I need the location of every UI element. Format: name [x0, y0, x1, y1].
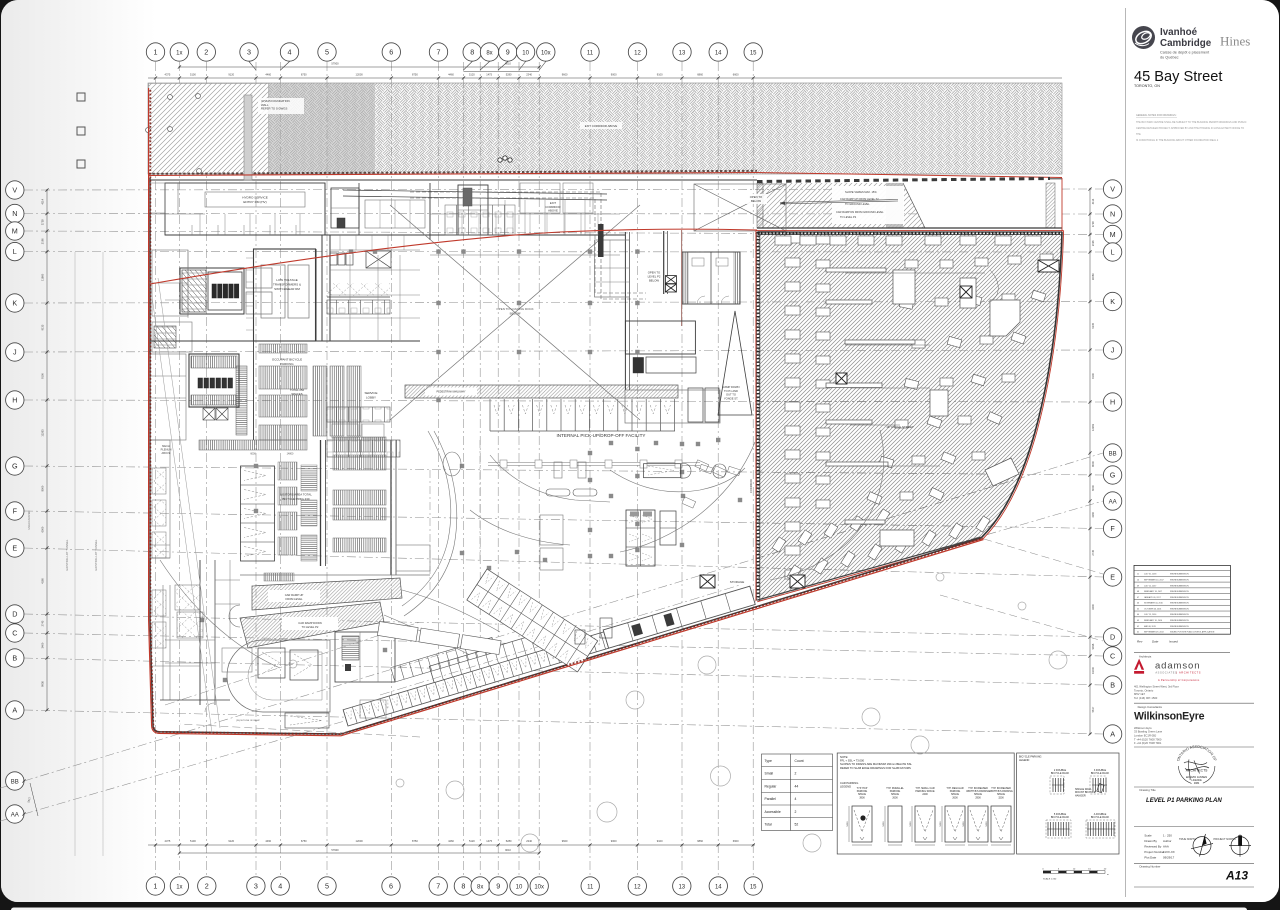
svg-text:4375: 4375: [165, 73, 171, 77]
svg-text:Drawing Number: Drawing Number: [1140, 865, 1161, 869]
svg-text:02: 02: [1137, 626, 1139, 628]
svg-text:52: 52: [795, 823, 799, 827]
svg-text:L: L: [13, 247, 17, 256]
svg-text:BELOW: BELOW: [751, 199, 761, 203]
svg-text:11: 11: [587, 50, 594, 56]
svg-text:Parallel: Parallel: [765, 797, 777, 801]
svg-text:2340: 2340: [526, 73, 532, 77]
svg-text:L: L: [1111, 247, 1115, 256]
svg-text:Regular: Regular: [765, 784, 778, 788]
svg-text:SLOPE VARIES MAX. 15%: SLOPE VARIES MAX. 15%: [845, 190, 877, 194]
svg-text:1: 1: [153, 881, 157, 890]
svg-text:8x: 8x: [477, 884, 483, 890]
svg-text:9600: 9600: [562, 73, 568, 77]
svg-text:F: F: [1110, 524, 1115, 533]
svg-text:8x: 8x: [486, 50, 492, 56]
svg-text:4460: 4460: [448, 73, 454, 77]
svg-text:G: G: [1110, 470, 1116, 479]
svg-text:BICYCLE RACK: BICYCLE RACK: [1091, 772, 1110, 775]
svg-text:Drawn By: Drawn By: [1144, 839, 1157, 843]
svg-text:5600: 5600: [847, 821, 849, 827]
svg-text:5280: 5280: [506, 839, 512, 843]
svg-text:4114: 4114: [41, 198, 45, 204]
svg-text:HANGER: HANGER: [1075, 794, 1086, 797]
svg-text:LEGEND: LEGEND: [840, 785, 851, 789]
svg-text:TO P1 AND: TO P1 AND: [724, 389, 738, 393]
svg-text:14800: 14800: [287, 453, 294, 456]
svg-text:OPEN TO LOADING DOCK: OPEN TO LOADING DOCK: [496, 307, 533, 311]
svg-text:5600: 5600: [883, 821, 885, 827]
svg-text:EXIT CORRIDOR ABOVE: EXIT CORRIDOR ABOVE: [585, 124, 618, 128]
svg-text:8: 8: [461, 881, 465, 890]
svg-text:THE: THE: [1136, 133, 1141, 136]
svg-text:REFER TO SLAB EDGE DRAWINGS FO: REFER TO SLAB EDGE DRAWINGS FOR SLAB DAT…: [840, 766, 911, 770]
svg-text:EXISTING LRT TUNNEL: EXISTING LRT TUNNEL: [94, 539, 98, 570]
svg-text:D: D: [1110, 632, 1115, 641]
svg-text:5: 5: [325, 47, 329, 56]
svg-text:9936: 9936: [1091, 643, 1095, 649]
svg-text:SPA RESUBMISSION: SPA RESUBMISSION: [1170, 625, 1189, 628]
svg-text:10: 10: [1137, 579, 1139, 581]
svg-text:F +44 (0)20 7608 7901: F +44 (0)20 7608 7901: [1134, 741, 1162, 745]
svg-text:Count: Count: [795, 759, 804, 763]
svg-text:SEPTEMBER 20, 2017: SEPTEMBER 20, 2017: [1144, 579, 1164, 581]
svg-text:INTERNAL PICK-UP/DROP-OFF FACI: INTERNAL PICK-UP/DROP-OFF FACILITY: [557, 433, 646, 438]
svg-text:1x: 1x: [176, 50, 182, 56]
svg-text:3200: 3200: [998, 796, 1004, 799]
svg-text:8000: 8000: [41, 485, 45, 491]
svg-text:BB: BB: [11, 779, 19, 785]
svg-text:TO LEVEL P2: TO LEVEL P2: [840, 215, 857, 219]
svg-text:Total: Total: [765, 823, 772, 827]
svg-text:JULY 15, 2016: JULY 15, 2016: [1144, 614, 1156, 616]
svg-text:44: 44: [795, 784, 799, 788]
svg-text:GENERAL NOTES FOR DRAWINGS :: GENERAL NOTES FOR DRAWINGS :: [1136, 114, 1177, 117]
svg-text:Small: Small: [765, 772, 774, 776]
svg-text:5100: 5100: [190, 839, 196, 843]
svg-text:2745: 2745: [1091, 549, 1095, 555]
svg-text:45 Bay Street: 45 Bay Street: [1134, 69, 1222, 85]
svg-text:THE BAY PARK CENTRE SHALL BE S: THE BAY PARK CENTRE SHALL BE SUBJECT TO …: [1136, 121, 1247, 124]
svg-text:2: 2: [795, 772, 797, 776]
svg-text:4460: 4460: [265, 73, 271, 77]
svg-text:Wilkinson Eyre: Wilkinson Eyre: [1134, 726, 1152, 730]
svg-text:06: 06: [1137, 603, 1139, 605]
svg-text:2400: 2400: [922, 793, 928, 796]
svg-text:MAY 08, 2015: MAY 08, 2015: [1144, 625, 1156, 628]
svg-text:2600: 2600: [892, 796, 898, 799]
svg-text:ABOVE: ABOVE: [162, 451, 171, 455]
svg-text:AA: AA: [11, 812, 19, 818]
svg-text:9100: 9100: [657, 73, 663, 77]
svg-text:F: F: [13, 506, 18, 515]
svg-text:3900: 3900: [859, 796, 865, 799]
svg-text:6000: 6000: [250, 453, 256, 456]
svg-text:12000: 12000: [356, 839, 364, 843]
svg-text:5120: 5120: [469, 73, 475, 77]
svg-text:London EC1R 0BJ: London EC1R 0BJ: [1134, 734, 1157, 738]
svg-text:1475: 1475: [486, 73, 492, 77]
svg-text:CAR RAMP DN FROM GROUND LEVEL: CAR RAMP DN FROM GROUND LEVEL: [836, 210, 884, 214]
svg-text:11: 11: [1137, 574, 1139, 576]
svg-text:m: m: [1107, 874, 1109, 876]
svg-text:Rev: Rev: [1137, 640, 1143, 644]
svg-text:K: K: [12, 298, 17, 307]
svg-text:12: 12: [634, 50, 641, 56]
svg-text:3400: 3400: [1091, 604, 1095, 610]
svg-text:9100: 9100: [1091, 373, 1095, 379]
svg-text:12: 12: [634, 884, 641, 890]
svg-text:5600: 5600: [963, 821, 965, 827]
svg-text:N: N: [12, 209, 17, 218]
svg-text:A: A: [12, 705, 17, 714]
svg-text:05: 05: [1137, 608, 1139, 610]
svg-text:FEBRUARY 10, 2016: FEBRUARY 10, 2016: [1144, 619, 1162, 622]
svg-text:BICYCLE RACK: BICYCLE RACK: [1051, 816, 1070, 819]
svg-text:10: 10: [516, 884, 523, 890]
svg-text:3738: 3738: [1091, 221, 1095, 227]
svg-text:2340: 2340: [526, 839, 532, 843]
svg-text:3: 3: [247, 47, 251, 56]
svg-text:4460: 4460: [448, 839, 454, 843]
svg-text:CORRIDOR: CORRIDOR: [749, 479, 753, 493]
svg-text:SWITCHGEAR RM: SWITCHGEAR RM: [274, 287, 300, 291]
svg-text:OUT TO: OUT TO: [726, 393, 736, 397]
svg-text:SPA RESUBMISSION: SPA RESUBMISSION: [1170, 607, 1189, 610]
svg-text:03: 03: [1137, 620, 1139, 622]
svg-text:16 YONGE STREET: 16 YONGE STREET: [886, 425, 914, 429]
svg-text:08: 08: [1137, 591, 1139, 593]
svg-text:D: D: [12, 609, 17, 618]
svg-text:J: J: [1111, 345, 1115, 354]
svg-text:Drawing Title: Drawing Title: [1140, 788, 1157, 792]
svg-text:TORONTO, ON: TORONTO, ON: [1134, 84, 1160, 88]
svg-text:CAR RAMP UP: CAR RAMP UP: [285, 593, 304, 597]
svg-text:5600: 5600: [940, 821, 942, 827]
svg-text:2196: 2196: [41, 238, 45, 244]
svg-text:Type: Type: [765, 759, 772, 763]
svg-text:6: 6: [389, 881, 393, 890]
svg-text:9100: 9100: [41, 373, 45, 379]
svg-text:5617: 5617: [1091, 706, 1095, 712]
svg-text:AAA: AAA: [1163, 845, 1169, 849]
svg-text:5600: 5600: [910, 821, 912, 827]
svg-text:9600: 9600: [562, 839, 568, 843]
svg-text:SPA RESUBMISSION: SPA RESUBMISSION: [1170, 596, 1189, 599]
svg-text:8750: 8750: [412, 73, 418, 77]
svg-text:du Québec: du Québec: [1160, 56, 1179, 60]
svg-text:11660: 11660: [41, 273, 45, 281]
svg-text:ARCHITECTS: ARCHITECTS: [1179, 671, 1201, 675]
svg-text:SPA RESUBMISSION: SPA RESUBMISSION: [1170, 578, 1189, 581]
svg-text:5600: 5600: [986, 821, 988, 827]
svg-text:SPA RESUBMISSION: SPA RESUBMISSION: [1170, 619, 1189, 622]
svg-text:Reviewed By: Reviewed By: [1144, 845, 1161, 849]
svg-text:9010: 9010: [505, 848, 511, 852]
svg-text:5280: 5280: [506, 73, 512, 77]
svg-text:N: N: [1110, 209, 1115, 218]
svg-text:Cambridge: Cambridge: [1160, 38, 1212, 49]
svg-text:12263: 12263: [1091, 423, 1095, 431]
svg-text:Toronto, Ontario: Toronto, Ontario: [1134, 688, 1154, 692]
svg-text:5120: 5120: [469, 839, 475, 843]
svg-text:(W)OUTLINE OF RAMP: (W)OUTLINE OF RAMP: [236, 719, 260, 722]
svg-text:3: 3: [254, 881, 258, 890]
svg-text:TRANSFORMERS &: TRANSFORMERS &: [273, 283, 301, 287]
svg-text:2196: 2196: [1091, 240, 1095, 246]
svg-text:1: 1: [154, 47, 158, 56]
svg-text:14: 14: [715, 50, 722, 56]
svg-text:8750: 8750: [412, 839, 418, 843]
svg-text:4: 4: [795, 797, 797, 801]
svg-text:4: 4: [288, 47, 292, 56]
svg-text:B: B: [12, 653, 17, 662]
svg-text:RAMP DOWN: RAMP DOWN: [723, 385, 740, 389]
svg-text:57900: 57900: [331, 62, 339, 66]
svg-text:6000: 6000: [1091, 485, 1095, 491]
svg-text:TO LEVEL P2: TO LEVEL P2: [302, 625, 319, 629]
svg-text:Caisse de dépôt e placement: Caisse de dépôt e placement: [1160, 51, 1210, 55]
svg-text:LEGEND: LEGEND: [1019, 759, 1029, 762]
svg-text:SCALE 1:250: SCALE 1:250: [1043, 878, 1057, 881]
svg-text:6600: 6600: [733, 839, 739, 843]
svg-text:LEVEL P1 PARKING PLAN: LEVEL P1 PARKING PLAN: [1146, 798, 1222, 804]
svg-text:4160: 4160: [1091, 511, 1095, 517]
svg-text:A13: A13: [1225, 869, 1248, 883]
svg-text:FFL + SSL = 73.000: FFL + SSL = 73.000: [840, 759, 865, 763]
svg-text:2: 2: [205, 881, 209, 890]
svg-text:09: 09: [1137, 585, 1139, 587]
svg-text:LOW VOLTAGE: LOW VOLTAGE: [276, 278, 297, 282]
svg-text:SPA RESUBMISSION: SPA RESUBMISSION: [1170, 602, 1189, 605]
svg-text:12263: 12263: [41, 429, 45, 437]
svg-text:09/29/17: 09/29/17: [1163, 856, 1175, 860]
svg-text:SPA RESUBMISSION: SPA RESUBMISSION: [1170, 590, 1189, 593]
svg-text:8: 8: [470, 47, 474, 56]
svg-text:6860: 6860: [697, 839, 703, 843]
svg-text:G: G: [12, 461, 18, 470]
svg-text:10x: 10x: [541, 50, 551, 56]
svg-text:4: 4: [278, 881, 282, 890]
svg-text:UNEXCAVATED: UNEXCAVATED: [27, 510, 31, 529]
svg-text:9: 9: [496, 881, 500, 890]
svg-text:9000: 9000: [611, 839, 617, 843]
svg-text:15: 15: [750, 50, 757, 56]
svg-text:6860: 6860: [697, 73, 703, 77]
svg-text:6600: 6600: [733, 73, 739, 77]
svg-text:Architects: Architects: [1139, 654, 1152, 658]
svg-text:04: 04: [1137, 614, 1139, 616]
svg-text:M5V 1E7: M5V 1E7: [1134, 692, 1146, 696]
svg-text:PEDESTRIAN WALKWAY: PEDESTRIAN WALKWAY: [436, 391, 465, 394]
svg-text:NOVEMBER 04, 2016: NOVEMBER 04, 2016: [1144, 603, 1163, 605]
svg-text:B: B: [1110, 680, 1115, 689]
svg-text:Author: Author: [1163, 839, 1172, 843]
svg-text:AA: AA: [1109, 499, 1117, 505]
svg-text:9120: 9120: [228, 839, 234, 843]
svg-text:IS CONDITIONAL IF THE BUILDING: IS CONDITIONAL IF THE BUILDING ABOUT OTH…: [1136, 139, 1219, 142]
svg-text:H: H: [12, 395, 17, 404]
svg-text:11: 11: [587, 884, 594, 890]
svg-text:CAR PARKING: CAR PARKING: [840, 781, 858, 785]
svg-text:10x: 10x: [534, 884, 544, 890]
svg-text:13: 13: [679, 50, 686, 56]
svg-text:9000: 9000: [611, 73, 617, 77]
svg-text:T +44 (0)20 7608 7900: T +44 (0)20 7608 7900: [1134, 737, 1162, 741]
svg-text:10: 10: [522, 50, 529, 56]
svg-text:9010: 9010: [505, 62, 511, 66]
svg-text:15: 15: [750, 884, 757, 890]
svg-text:H: H: [1110, 397, 1115, 406]
svg-text:MECH: MECH: [162, 444, 170, 448]
svg-text:FROM LEVEL: FROM LEVEL: [285, 597, 303, 601]
svg-text:8000: 8000: [1091, 461, 1095, 467]
svg-text:CENTRE DETAILED PROJECT. APPRO: CENTRE DETAILED PROJECT. APPROVED BY AND…: [1136, 127, 1244, 130]
svg-text:11000: 11000: [1091, 666, 1095, 674]
svg-text:1 : 250: 1 : 250: [1163, 834, 1172, 838]
svg-text:BB: BB: [1109, 451, 1117, 457]
svg-text:9100: 9100: [657, 839, 663, 843]
svg-text:TRUE NORTH: TRUE NORTH: [1179, 837, 1196, 841]
svg-text:V: V: [1110, 184, 1115, 193]
svg-text:9936: 9936: [41, 681, 45, 687]
svg-text:NOTE:: NOTE:: [840, 755, 848, 759]
svg-text:4114: 4114: [1091, 198, 1095, 204]
svg-text:Hines: Hines: [1220, 34, 1250, 49]
svg-text:LOBBY: LOBBY: [366, 395, 376, 399]
svg-text:4460: 4460: [265, 839, 271, 843]
svg-text:1475: 1475: [486, 839, 492, 843]
svg-text:V: V: [12, 185, 17, 194]
svg-text:STORAGE: STORAGE: [730, 580, 745, 584]
svg-text:TO GROUND LEVEL: TO GROUND LEVEL: [845, 202, 870, 206]
svg-text:7: 7: [437, 47, 441, 56]
svg-text:4884: 4884: [1194, 782, 1200, 785]
svg-text:SLOPES TO DRAINS ARE MAXIMUM 1: SLOPES TO DRAINS ARE MAXIMUM 160mm BELOW…: [840, 762, 912, 766]
svg-text:BICYCLE RACK: BICYCLE RACK: [1051, 772, 1070, 775]
svg-text:EXISTING LRT TUNNEL: EXISTING LRT TUNNEL: [65, 539, 69, 570]
svg-text:6750: 6750: [301, 839, 307, 843]
svg-text:Date: Date: [1152, 640, 1159, 644]
svg-text:Scale: Scale: [1144, 834, 1152, 838]
svg-text:01: 01: [1137, 632, 1139, 634]
svg-text:4160: 4160: [41, 578, 45, 584]
svg-text:9135: 9135: [41, 324, 45, 330]
svg-text:SEPTEMBER 09, 2013: SEPTEMBER 09, 2013: [1144, 632, 1164, 634]
svg-text:E: E: [1110, 572, 1115, 581]
svg-text:Ivanhoé: Ivanhoé: [1160, 27, 1198, 38]
svg-text:6: 6: [389, 47, 393, 56]
svg-text:401 Wellington Street West, 3r: 401 Wellington Street West, 3rd Floor: [1134, 685, 1179, 689]
svg-text:M: M: [12, 226, 18, 235]
svg-text:57900: 57900: [331, 848, 339, 852]
svg-text:Tel: (416) 967-1500: Tel: (416) 967-1500: [1134, 696, 1158, 700]
svg-text:OCTOBER 06, 2016: OCTOBER 06, 2016: [1144, 608, 1161, 610]
svg-text:33 Bowling Green Lane: 33 Bowling Green Lane: [1134, 730, 1163, 734]
svg-text:2: 2: [204, 47, 208, 56]
svg-text:Plot Date: Plot Date: [1144, 856, 1156, 860]
svg-text:3738: 3738: [41, 219, 45, 225]
svg-text:JULY 31, 2018: JULY 31, 2018: [1144, 574, 1156, 576]
svg-text:BELOW: BELOW: [510, 312, 521, 316]
svg-text:4375: 4375: [165, 839, 171, 843]
svg-text:Accessible: Accessible: [765, 810, 781, 814]
svg-text:2600: 2600: [952, 796, 958, 799]
svg-text:REFER TO S-DWGS: REFER TO S-DWGS: [261, 107, 287, 111]
svg-text:FEBRUARY 16, 2017: FEBRUARY 16, 2017: [1144, 590, 1162, 593]
svg-text:2900: 2900: [975, 796, 981, 799]
svg-text:SPA RESUBMISSION: SPA RESUBMISSION: [1170, 584, 1189, 587]
svg-text:6750: 6750: [301, 73, 307, 77]
svg-text:K: K: [1110, 297, 1115, 306]
svg-text:14: 14: [715, 884, 722, 890]
svg-text:M: M: [1110, 230, 1116, 239]
svg-text:YONGE ST.: YONGE ST.: [724, 396, 739, 400]
svg-text:2: 2: [795, 810, 797, 814]
svg-text:5100: 5100: [190, 73, 196, 77]
svg-text:11660: 11660: [1091, 273, 1095, 281]
svg-text:A: A: [1110, 729, 1115, 738]
svg-text:3400: 3400: [41, 642, 45, 648]
svg-text:Issued: Issued: [1169, 640, 1178, 644]
svg-text:6000: 6000: [41, 526, 45, 532]
svg-text:E: E: [12, 543, 17, 552]
svg-text:12000: 12000: [356, 73, 364, 77]
svg-text:ASSOCIATES: ASSOCIATES: [1155, 671, 1177, 675]
svg-text:BELOW: BELOW: [649, 279, 659, 283]
svg-text:ENTRY RM (HV): ENTRY RM (HV): [243, 200, 266, 204]
svg-text:adamson: adamson: [1155, 661, 1200, 672]
svg-text:SPA RESUBMISSION: SPA RESUBMISSION: [1170, 573, 1189, 576]
svg-text:SPACES: SPACES: [291, 392, 302, 396]
svg-text:C: C: [12, 628, 17, 637]
svg-text:PARKING: PARKING: [280, 362, 294, 366]
svg-text:JANUARY 09, 2017: JANUARY 09, 2017: [1144, 596, 1161, 599]
svg-text:9120: 9120: [228, 73, 234, 77]
svg-text:7: 7: [436, 881, 440, 890]
svg-text:9: 9: [506, 47, 510, 56]
svg-text:BICYCLE PRKG 230: BICYCLE PRKG 230: [283, 497, 310, 501]
svg-text:2745: 2745: [41, 620, 45, 626]
svg-text:CAR RAMP DOWN: CAR RAMP DOWN: [298, 621, 321, 625]
svg-text:BICYCLE RACK: BICYCLE RACK: [1091, 816, 1110, 819]
svg-text:Project Number: Project Number: [1144, 850, 1164, 854]
svg-text:Design Consultants: Design Consultants: [1138, 705, 1163, 709]
svg-text:VISITORS AREA TOTAL: VISITORS AREA TOTAL: [280, 493, 312, 497]
svg-text:5: 5: [325, 881, 329, 890]
svg-text:13: 13: [678, 884, 685, 890]
svg-text:11XX-XX: 11XX-XX: [1163, 850, 1175, 854]
svg-text:1x: 1x: [176, 884, 182, 890]
svg-text:9135: 9135: [1091, 322, 1095, 328]
svg-text:J: J: [13, 347, 17, 356]
svg-text:JULY 12, 2017: JULY 12, 2017: [1144, 585, 1156, 587]
svg-text:ISSUED FOR SITE PLAN CONTROL A: ISSUED FOR SITE PLAN CONTROL APPLICATION: [1170, 631, 1215, 634]
svg-text:C: C: [1110, 651, 1115, 660]
svg-text:07: 07: [1137, 597, 1139, 599]
svg-text:A Partnership of Corporations: A Partnership of Corporations: [1158, 679, 1200, 682]
svg-text:ABOVE: ABOVE: [548, 209, 558, 213]
svg-text:SPA RESUBMISSION: SPA RESUBMISSION: [1170, 613, 1189, 616]
svg-text:WilkinsonEyre: WilkinsonEyre: [1134, 711, 1205, 723]
